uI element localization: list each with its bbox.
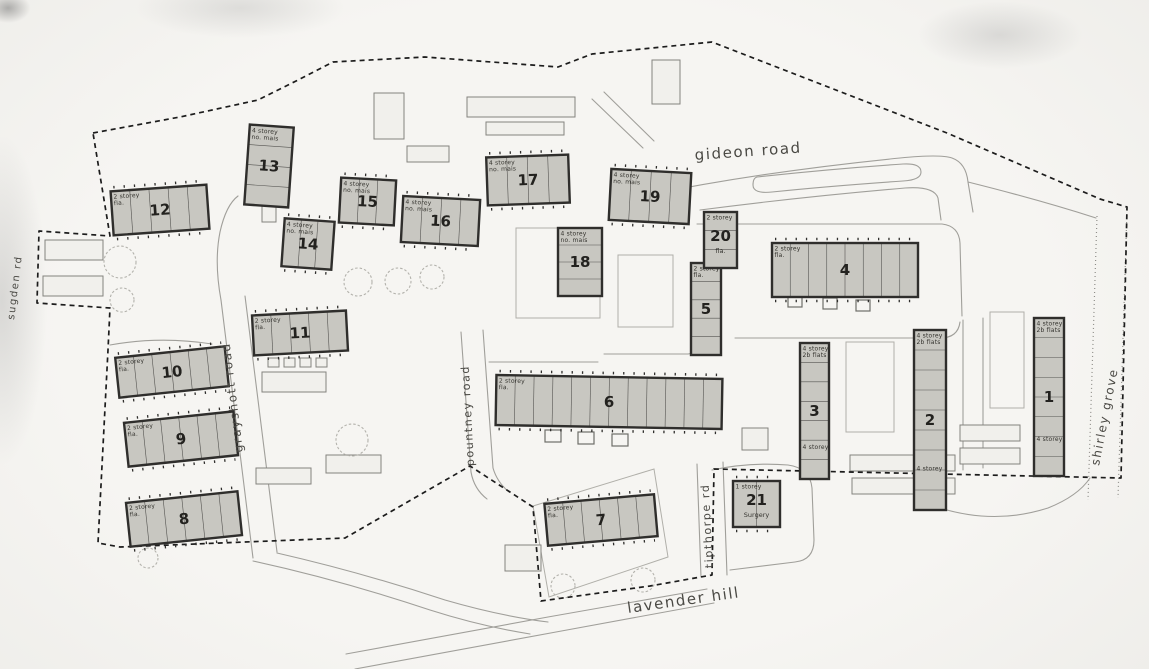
building-1: 4 storey2b flats4 storey1	[1034, 318, 1064, 476]
outbuilding	[256, 468, 311, 484]
building-sublabel: Surgery	[744, 511, 770, 519]
tree-icon	[110, 288, 134, 312]
road-edge	[648, 156, 973, 212]
building-number: 11	[289, 323, 311, 342]
courtyard	[990, 312, 1024, 408]
building-number: 4	[840, 261, 850, 279]
courtyard	[846, 342, 894, 432]
unit-tick-marks	[612, 224, 686, 228]
outbuilding	[326, 455, 381, 473]
building-number: 8	[178, 510, 190, 529]
road-edge	[604, 342, 702, 354]
building-16: 4 storeyno. mais16	[401, 192, 481, 250]
building-19: 4 storeyno. mais19	[609, 165, 692, 228]
building-2: 4 storey2b flats4 storey2	[914, 330, 946, 510]
unit-tick-marks	[288, 215, 332, 218]
road-edge	[110, 340, 212, 345]
unit-tick-marks	[489, 151, 565, 154]
building-7: 2 storeyfla.7	[544, 490, 658, 549]
building-storey-label: fla.	[127, 430, 138, 438]
building-17: 4 storeyno. mais17	[486, 151, 570, 210]
road-label-sugden-road: sugden rd	[6, 255, 25, 320]
building-storey-label: 2 storey	[707, 215, 733, 222]
building-storey-label: no. mais	[489, 165, 516, 173]
outbuilding	[45, 240, 103, 260]
parking-square	[578, 432, 594, 444]
road-label-pountney-road: pountney road	[459, 365, 477, 467]
unit-tick-marks	[284, 270, 328, 273]
building-10: 2 storeyfla.10	[115, 342, 229, 401]
building-13: 4 storeyno. mais13	[244, 125, 293, 208]
parking-square	[823, 298, 837, 309]
outbuilding	[960, 425, 1020, 441]
road-edge	[753, 164, 921, 192]
building-storey-label: no. mais	[561, 237, 588, 244]
building-storey-label: fla.	[548, 512, 559, 520]
tree-icon	[104, 246, 136, 278]
road-edge	[217, 196, 238, 300]
building-11: 2 storeyfla.11	[252, 307, 348, 360]
building-number: 14	[297, 234, 319, 253]
building-number: 21	[746, 491, 767, 509]
site-plan-svg: 4 storey2b flats4 storey14 storey2b flat…	[0, 0, 1149, 669]
building-storey-label: fla.	[255, 324, 266, 332]
road-edge	[940, 478, 1090, 517]
road-edge	[604, 92, 654, 141]
unit-tick-marks	[344, 174, 393, 177]
road-edge	[253, 561, 530, 634]
building-18: 4 storeyno. mais18	[558, 228, 602, 296]
building-number: 6	[604, 393, 615, 411]
building-storey-label: 4 storey	[1037, 436, 1063, 443]
building-15: 4 storeyno. mais15	[339, 174, 397, 230]
outbuilding	[486, 122, 564, 135]
building-storey-label: fla.	[114, 199, 125, 207]
courtyard	[618, 255, 673, 327]
outbuilding	[374, 93, 404, 139]
building-storey-label: no. mais	[405, 205, 432, 213]
building-number: 1	[1044, 388, 1054, 406]
tree-icon	[551, 574, 575, 598]
outbuilding	[262, 206, 276, 222]
outbuilding	[300, 358, 311, 367]
parking-square	[545, 430, 561, 442]
building-storey-label: 2b flats	[917, 339, 941, 346]
road-edge	[355, 603, 714, 669]
building-number: 17	[517, 171, 538, 190]
building-number: 12	[149, 200, 171, 219]
building-number: 19	[639, 187, 661, 206]
building-storey-label: 4 storey	[803, 444, 829, 451]
building-20: 2 storey20fla.	[704, 212, 737, 268]
unit-tick-marks	[500, 371, 720, 375]
outbuildings-layer	[43, 60, 1020, 571]
tree-icon	[385, 268, 411, 294]
unit-tick-marks	[342, 227, 391, 230]
outbuilding	[467, 97, 575, 117]
building-storey-label: 1 storey	[736, 484, 762, 491]
building-storey-label: fla.	[129, 511, 140, 519]
outbuilding	[505, 545, 541, 571]
building-12: 2 storeyfla.12	[110, 181, 209, 240]
unit-tick-marks	[406, 192, 477, 196]
building-6: 2 storeyfla.6	[496, 371, 723, 433]
building-storey-label: 2b flats	[803, 352, 827, 359]
unit-tick-marks	[491, 207, 567, 210]
building-4: 2 storeyfla.4	[772, 239, 918, 301]
tree-icon	[138, 548, 158, 568]
tree-icon	[344, 268, 372, 296]
outbuilding	[262, 372, 326, 392]
outbuilding	[316, 358, 327, 367]
building-number: 13	[258, 156, 280, 175]
outbuilding	[742, 428, 768, 450]
building-9: 2 storeyfla.9	[124, 407, 239, 470]
outbuilding	[268, 358, 279, 367]
outbuilding	[960, 448, 1020, 464]
building-number: 20	[710, 227, 731, 245]
tree-icon	[336, 424, 368, 456]
building-number: 3	[809, 402, 819, 420]
road-label-shirley-grove: shirley grove	[1088, 367, 1121, 467]
building-21: 1 storey21Surgery	[733, 477, 780, 531]
road-label-gideon-road: gideon road	[694, 139, 802, 164]
building-number: 7	[595, 511, 607, 530]
outbuilding	[407, 146, 449, 162]
building-storey-label: no. mais	[613, 178, 640, 186]
outbuilding	[652, 60, 680, 104]
road-label-lavender-hill: lavender hill	[626, 583, 741, 617]
outbuilding	[284, 358, 295, 367]
unit-tick-marks	[404, 246, 475, 250]
outbuilding	[43, 276, 103, 296]
building-number: 2	[925, 411, 935, 429]
building-number: 5	[701, 300, 711, 318]
unit-tick-marks	[499, 429, 719, 433]
building-number: 16	[430, 211, 452, 230]
road-edge	[723, 462, 727, 575]
building-number: 18	[570, 253, 591, 271]
building-number: 9	[175, 430, 187, 449]
building-storey-label: 2b flats	[1037, 327, 1061, 334]
building-5: 2 storeyfla.5	[691, 263, 721, 355]
building-storey-label: 4 storey	[917, 465, 943, 472]
unit-tick-marks	[615, 165, 689, 169]
building-14: 4 storeyno. mais14	[281, 214, 335, 273]
building-sublabel: fla.	[715, 247, 725, 255]
parking-square	[612, 434, 628, 446]
building-storey-label: fla.	[694, 272, 704, 279]
road-edge	[592, 99, 643, 148]
building-storey-label: fla.	[499, 384, 509, 391]
building-storey-label: fla.	[119, 365, 130, 373]
building-number: 15	[357, 192, 379, 211]
building-8: 2 storeyfla.8	[126, 487, 243, 550]
building-storey-label: fla.	[775, 252, 785, 259]
site-plan-scan: 4 storey2b flats4 storey14 storey2b flat…	[0, 0, 1149, 669]
road-edge	[968, 182, 1096, 218]
tree-icon	[420, 265, 444, 289]
building-number: 10	[161, 362, 184, 382]
building-3: 4 storey2b flats4 storey3	[800, 343, 829, 479]
